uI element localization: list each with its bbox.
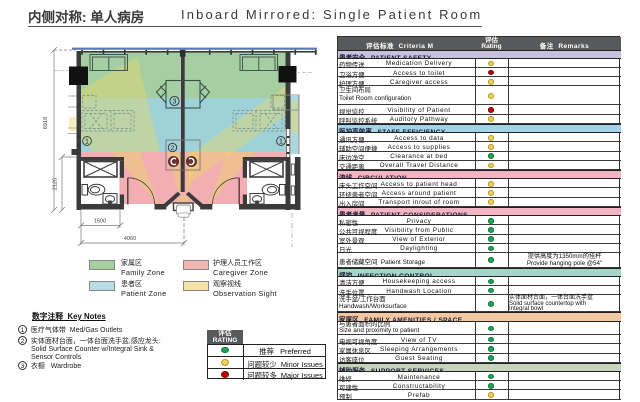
svg-text:4060: 4060 — [124, 236, 136, 242]
svg-text:1: 1 — [279, 139, 283, 146]
svg-text:1: 1 — [85, 139, 89, 146]
svg-text:6918: 6918 — [43, 117, 49, 129]
svg-text:2: 2 — [171, 145, 175, 152]
svg-text:3: 3 — [173, 99, 177, 106]
svg-text:2120: 2120 — [53, 178, 59, 190]
svg-text:1500: 1500 — [94, 219, 106, 225]
